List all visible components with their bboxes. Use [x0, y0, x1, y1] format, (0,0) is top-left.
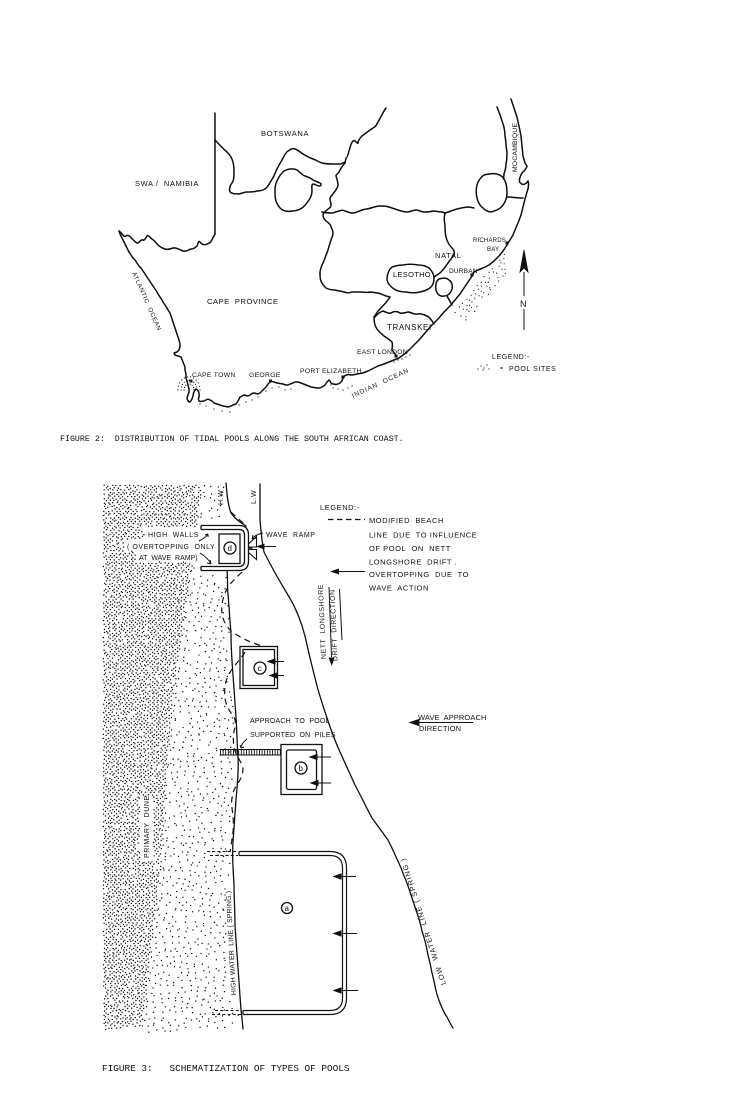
svg-text:MODIFIED BEACH: MODIFIED BEACH	[369, 516, 444, 525]
svg-text:NETT LONGSHORE: NETT LONGSHORE	[318, 584, 328, 659]
svg-text:LESOTHO: LESOTHO	[393, 270, 431, 279]
svg-text:c: c	[258, 664, 263, 673]
svg-text:LOW WATER LINE ( SPRING ): LOW WATER LINE ( SPRING )	[398, 856, 448, 986]
svg-text:d: d	[228, 544, 233, 553]
svg-text:APPROACH TO POOL: APPROACH TO POOL	[250, 718, 330, 725]
svg-text:BAY: BAY	[487, 247, 499, 253]
svg-text:WAVE ACTION: WAVE ACTION	[369, 584, 429, 593]
svg-text:L.W: L.W	[251, 490, 258, 504]
svg-text:WAVE APPROACH: WAVE APPROACH	[418, 713, 487, 722]
svg-text:SWA / NAMIBIA: SWA / NAMIBIA	[135, 179, 199, 188]
svg-text:OF POOL ON NETT: OF POOL ON NETT	[369, 544, 451, 553]
svg-text:N: N	[520, 299, 527, 309]
svg-text:OVERTOPPING DUE TO: OVERTOPPING DUE TO	[369, 570, 469, 579]
svg-text:AT WAVE RAMP): AT WAVE RAMP)	[139, 555, 198, 562]
svg-text:CAPE PROVINCE: CAPE PROVINCE	[207, 297, 279, 306]
svg-text:PORT ELIZABETH: PORT ELIZABETH	[300, 368, 362, 375]
svg-text:SUPPORTED ON PILES: SUPPORTED ON PILES	[250, 732, 336, 739]
svg-text:DIRECTION: DIRECTION	[419, 724, 461, 733]
svg-text:GEORGE: GEORGE	[249, 372, 281, 379]
svg-text:LEGEND:-: LEGEND:-	[320, 503, 360, 512]
svg-text:LINE DUE TO INFLUENCE: LINE DUE TO INFLUENCE	[369, 531, 477, 540]
svg-text:b: b	[299, 764, 304, 773]
svg-text:PRIMARY DUNE: PRIMARY DUNE	[144, 795, 151, 858]
svg-text:FIGURE 3: SCHEMATIZATION OF: FIGURE 3: SCHEMATIZATION OF TYPES OF POO…	[102, 1063, 350, 1074]
svg-text:H.W: H.W	[218, 490, 225, 505]
svg-text:ATLANTIC OCEAN: ATLANTIC OCEAN	[130, 271, 162, 332]
svg-text:TRANSKEI: TRANSKEI	[387, 323, 432, 332]
svg-text:FIGURE 2: DISTRIBUTION OF TID: FIGURE 2: DISTRIBUTION OF TIDAL POOLS AL…	[60, 435, 404, 444]
svg-text:NATAL: NATAL	[435, 251, 462, 260]
svg-text:( OVERTOPPING ONLY: ( OVERTOPPING ONLY	[127, 544, 215, 551]
svg-text:CAPE TOWN: CAPE TOWN	[192, 372, 236, 379]
svg-text:a: a	[285, 904, 290, 913]
svg-text:HIGH WALLS: HIGH WALLS	[148, 532, 199, 539]
svg-text:MOCAMBIQUE: MOCAMBIQUE	[512, 123, 519, 172]
svg-text:EAST LONDON: EAST LONDON	[357, 349, 408, 356]
svg-text:BOTSWANA: BOTSWANA	[261, 129, 309, 138]
svg-text:POOL SITES: POOL SITES	[509, 366, 556, 373]
svg-text:LONGSHORE DRIFT .: LONGSHORE DRIFT .	[369, 558, 457, 567]
svg-text:RICHARDS: RICHARDS	[473, 238, 506, 244]
svg-text:LEGEND:-: LEGEND:-	[492, 354, 530, 361]
svg-text:WAVE RAMP: WAVE RAMP	[266, 532, 315, 539]
